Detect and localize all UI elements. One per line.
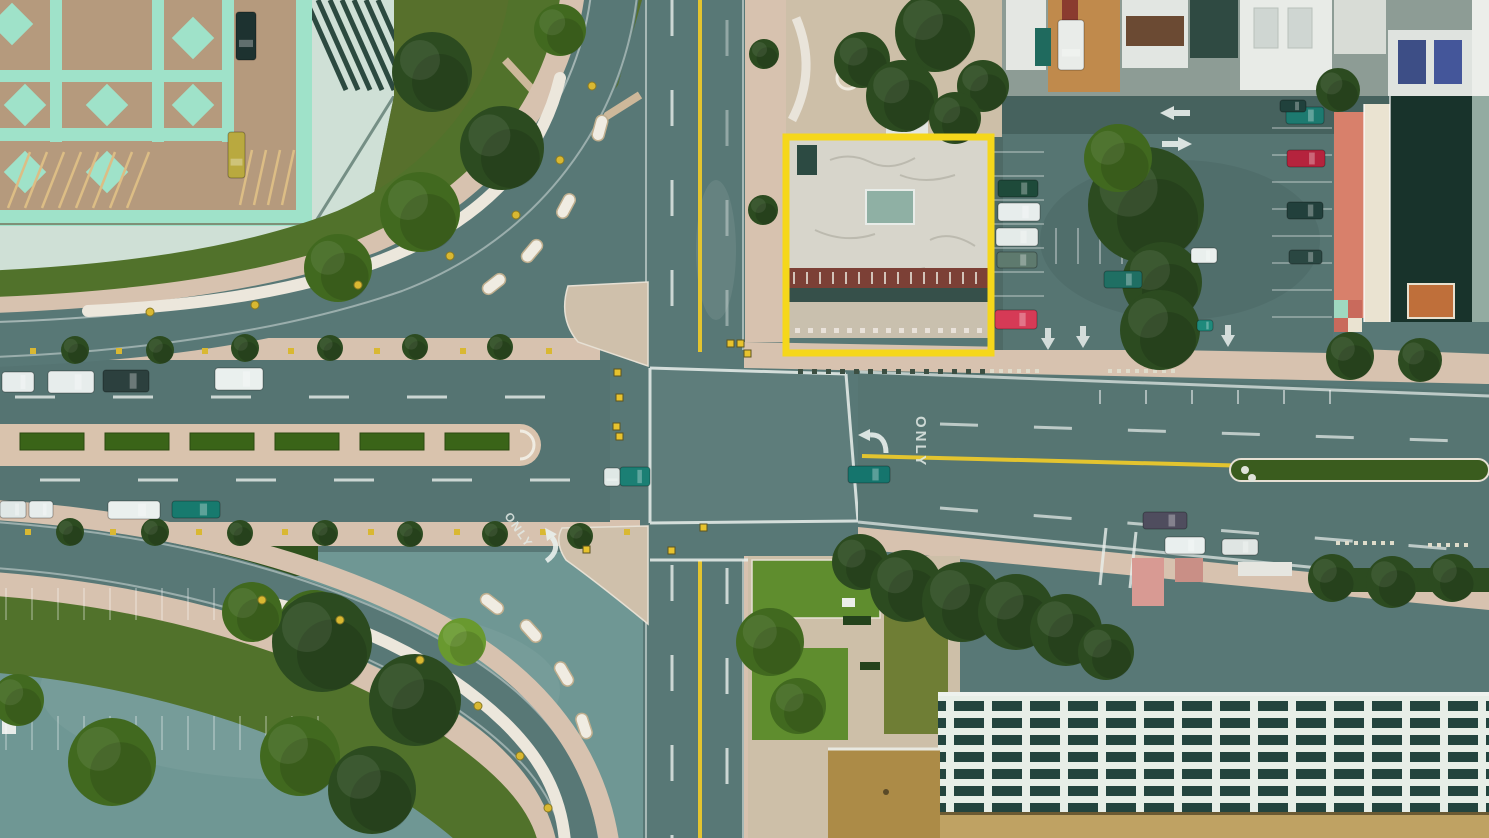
- tree: [770, 678, 826, 734]
- paver-dot: [1135, 369, 1139, 373]
- car-windshield: [1188, 540, 1194, 552]
- car-body: [215, 368, 263, 390]
- hedge-planter: [190, 433, 254, 450]
- paver-dot: [854, 369, 859, 374]
- tree-highlight: [320, 338, 333, 351]
- parking-meter: [202, 348, 208, 354]
- car-body: [1287, 150, 1325, 167]
- parking-meter: [30, 348, 36, 354]
- tree-highlight: [743, 615, 777, 649]
- car-body: [604, 468, 620, 486]
- tree-highlight: [962, 65, 988, 91]
- canopy-dot: [251, 301, 259, 309]
- paver-dot: [1144, 369, 1148, 373]
- center-yellow-line: [698, 560, 702, 838]
- parking-meter: [282, 529, 288, 535]
- tree: [146, 336, 174, 364]
- car-windshield: [637, 470, 642, 483]
- hedge: [843, 616, 871, 625]
- paver-dot: [910, 369, 915, 374]
- car: [997, 252, 1037, 268]
- roof-equipment: [797, 145, 817, 175]
- paver-dot: [938, 328, 943, 333]
- paver-dot: [1336, 541, 1340, 545]
- car: [996, 228, 1038, 246]
- parking-meter: [25, 529, 31, 535]
- paver-dot: [1126, 369, 1130, 373]
- paver-dot: [821, 328, 826, 333]
- car: [998, 180, 1038, 197]
- paver-dot: [1354, 541, 1358, 545]
- coral-stripe: [1334, 112, 1364, 318]
- car-windshield: [239, 40, 253, 47]
- tree-highlight: [400, 524, 413, 537]
- tree-highlight: [228, 588, 258, 618]
- car: [103, 370, 149, 392]
- tree: [141, 518, 169, 546]
- paver-dot: [798, 369, 803, 374]
- car: [1143, 512, 1187, 529]
- tree-highlight: [485, 524, 498, 537]
- car: [848, 466, 890, 483]
- paver-dot: [1390, 541, 1394, 545]
- tree-highlight: [311, 241, 345, 275]
- car: [108, 501, 160, 519]
- tree-highlight: [539, 9, 565, 35]
- car-body: [2, 372, 34, 392]
- traffic-signal: [616, 433, 623, 440]
- tree-highlight: [59, 521, 73, 535]
- car-body: [848, 466, 890, 483]
- tree: [272, 592, 372, 692]
- tree: [317, 335, 343, 361]
- solar-panel: [1398, 40, 1426, 84]
- paver-dot: [1446, 543, 1450, 547]
- car-body: [1289, 250, 1322, 264]
- car-windshield: [138, 504, 146, 517]
- curb-ramp: [1175, 558, 1203, 582]
- tree: [482, 521, 508, 547]
- car-windshield: [1021, 183, 1027, 195]
- tree-highlight: [1128, 298, 1168, 338]
- paver-dot: [826, 369, 831, 374]
- paver-dot: [896, 369, 901, 374]
- car-windshield: [1308, 205, 1313, 217]
- car-windshield: [1022, 206, 1028, 219]
- tan-roof-band: [938, 815, 1489, 838]
- tree-highlight: [388, 180, 428, 220]
- car-windshield: [1206, 250, 1210, 261]
- car-body: [103, 370, 149, 392]
- car-windshield: [130, 373, 137, 388]
- car: [215, 368, 263, 390]
- car-body: [0, 501, 26, 518]
- car: [29, 501, 53, 518]
- tree-highlight: [1313, 559, 1337, 583]
- paver-dot: [882, 369, 887, 374]
- hedge: [860, 662, 880, 670]
- tree: [328, 746, 416, 834]
- car-windshield: [606, 478, 617, 481]
- tree-highlight: [1402, 342, 1424, 364]
- canopy-dot: [446, 252, 454, 260]
- paver-dot: [808, 328, 813, 333]
- tree: [1366, 556, 1418, 608]
- canopy-dot: [416, 656, 424, 664]
- paver-dot: [860, 328, 865, 333]
- car-windshield: [1062, 49, 1080, 57]
- car-body: [1197, 320, 1213, 331]
- paver-dot: [938, 369, 943, 374]
- tree-highlight: [337, 755, 381, 799]
- car: [1058, 20, 1084, 70]
- traffic-signal: [616, 394, 623, 401]
- canopy-dot: [146, 308, 154, 316]
- car-windshield: [231, 159, 243, 166]
- scene-canvas: ONLY ONLY: [0, 0, 1489, 838]
- paver-dot: [1381, 541, 1385, 545]
- paver-dot: [1437, 543, 1441, 547]
- tree-highlight: [443, 623, 467, 647]
- tree: [748, 195, 778, 225]
- parking-meter: [546, 348, 552, 354]
- paver-dot: [868, 369, 873, 374]
- canopy-dot: [354, 281, 362, 289]
- traffic-signal: [737, 340, 744, 347]
- road-marking-only-east: ONLY: [912, 416, 929, 468]
- canopy-dot: [474, 702, 482, 710]
- parking-meter: [460, 348, 466, 354]
- tree-highlight: [1371, 561, 1397, 587]
- tree-highlight: [77, 727, 121, 771]
- tree-highlight: [234, 337, 248, 351]
- car-windshield: [75, 374, 82, 389]
- car-body: [1143, 512, 1187, 529]
- checker-trim: [1334, 300, 1362, 332]
- traffic-signal: [613, 423, 620, 430]
- tree: [1078, 624, 1134, 680]
- tree: [392, 32, 472, 112]
- car-windshield: [243, 371, 250, 386]
- pink-walkway: [1132, 558, 1164, 606]
- car: [48, 371, 94, 393]
- canopy-dot: [544, 804, 552, 812]
- hedge-planter: [20, 433, 84, 450]
- car-body: [995, 310, 1037, 329]
- paver-dot: [1464, 543, 1468, 547]
- paver-dot: [840, 369, 845, 374]
- car-body: [1287, 202, 1323, 219]
- parking-meter: [288, 348, 294, 354]
- tree-highlight: [405, 337, 418, 350]
- car-windshield: [1295, 102, 1299, 110]
- tree: [312, 520, 338, 546]
- traffic-signal: [744, 350, 751, 357]
- car-windshield: [1020, 231, 1026, 244]
- car: [1104, 271, 1142, 288]
- traffic-signal: [614, 369, 621, 376]
- tree: [68, 718, 156, 806]
- canopy-dot: [258, 596, 266, 604]
- brick-chimney: [1408, 284, 1454, 318]
- tree: [567, 523, 593, 549]
- car-body: [998, 180, 1038, 197]
- tree: [56, 518, 84, 546]
- car: [620, 467, 650, 486]
- tree-highlight: [930, 570, 970, 610]
- parking-meter: [116, 348, 122, 354]
- skylight-grid-roof: [900, 692, 1489, 838]
- paver-dot: [964, 328, 969, 333]
- car-windshield: [43, 504, 47, 516]
- car-body: [997, 252, 1037, 268]
- parking-meter: [110, 529, 116, 535]
- ochre-roof: [828, 749, 940, 838]
- car: [1280, 100, 1306, 112]
- car-windshield: [200, 504, 207, 516]
- car-body: [108, 501, 160, 519]
- hedge-planter: [105, 433, 169, 450]
- tree-highlight: [840, 38, 868, 66]
- coral-building: [1334, 96, 1489, 332]
- paver-dot: [812, 369, 817, 374]
- car-windshield: [1206, 322, 1208, 330]
- canopy-dot: [588, 82, 596, 90]
- tree-highlight: [64, 339, 78, 353]
- tree-highlight: [1037, 601, 1073, 637]
- paver-dot: [1363, 541, 1367, 545]
- canopy-dot: [512, 211, 520, 219]
- tree: [397, 521, 423, 547]
- tree-highlight: [752, 42, 767, 57]
- car-windshield: [1308, 110, 1314, 122]
- tree: [736, 608, 804, 676]
- tree-highlight: [838, 540, 866, 568]
- paver-dot: [1117, 369, 1121, 373]
- tree-highlight: [282, 602, 332, 652]
- paver-dot: [1428, 543, 1432, 547]
- traffic-signal: [583, 546, 590, 553]
- tree: [749, 39, 779, 69]
- paver-dot: [1171, 369, 1175, 373]
- car: [1165, 537, 1205, 554]
- canopy-dot: [516, 752, 524, 760]
- paver-dot: [925, 328, 930, 333]
- paver-dot: [886, 328, 891, 333]
- tree: [222, 582, 282, 642]
- center-yellow-line: [698, 0, 702, 352]
- tree-highlight: [468, 114, 510, 156]
- paver-dot: [924, 369, 929, 374]
- parking-meter: [368, 529, 374, 535]
- tree-highlight: [149, 339, 163, 353]
- tree: [304, 234, 372, 302]
- tree: [1428, 554, 1476, 602]
- tree-highlight: [776, 684, 804, 712]
- tree-highlight: [1091, 131, 1125, 165]
- parking-meter: [540, 529, 546, 535]
- tree: [1308, 554, 1356, 602]
- car-body: [998, 203, 1040, 221]
- car-body: [1280, 100, 1306, 112]
- car: [1197, 320, 1213, 331]
- mower: [842, 598, 855, 607]
- paver-dot: [999, 369, 1003, 373]
- tree-highlight: [268, 724, 308, 764]
- paver-dot: [1035, 369, 1039, 373]
- car-windshield: [872, 469, 878, 481]
- cream-stripe: [1364, 104, 1390, 322]
- tree: [866, 60, 938, 132]
- tree: [1120, 290, 1200, 370]
- parking-meter: [454, 529, 460, 535]
- paver-dot: [951, 328, 956, 333]
- paver-dot: [980, 369, 985, 374]
- paver-dot: [1455, 543, 1459, 547]
- tree: [402, 334, 428, 360]
- tree: [380, 172, 460, 252]
- car-windshield: [1126, 274, 1132, 286]
- tree-highlight: [570, 526, 583, 539]
- car-body: [1104, 271, 1142, 288]
- car-body: [228, 132, 245, 178]
- canopy-dot: [556, 156, 564, 164]
- car: [1222, 539, 1258, 555]
- tree-highlight: [378, 663, 424, 709]
- car-body: [1058, 20, 1084, 70]
- car-body: [29, 501, 53, 518]
- roof-courtyard: [866, 190, 914, 224]
- car: [998, 203, 1040, 221]
- paver-dot: [1345, 541, 1349, 545]
- tree: [1398, 338, 1442, 382]
- tree-highlight: [986, 582, 1024, 620]
- aerial-intersection-scene: ONLY ONLY: [0, 0, 1489, 838]
- tree-highlight: [490, 337, 503, 350]
- car-body: [620, 467, 650, 486]
- tree-highlight: [315, 523, 328, 536]
- car: [604, 468, 620, 486]
- car-body: [1165, 537, 1205, 554]
- paver-dot: [1008, 369, 1012, 373]
- tree-highlight: [1084, 630, 1112, 658]
- tree: [260, 716, 340, 796]
- paver-dot: [1017, 369, 1021, 373]
- car: [1289, 250, 1322, 264]
- car-windshield: [1243, 541, 1248, 552]
- paver-dot: [912, 328, 917, 333]
- traffic-signal: [727, 340, 734, 347]
- tree: [487, 334, 513, 360]
- hedge-planter: [360, 433, 424, 450]
- traffic-signal: [668, 547, 675, 554]
- car: [172, 501, 220, 518]
- tree: [1084, 124, 1152, 192]
- tree: [460, 106, 544, 190]
- paver-dot: [899, 328, 904, 333]
- tree-highlight: [1433, 559, 1457, 583]
- tree: [227, 520, 253, 546]
- paver-dot: [795, 328, 800, 333]
- east-grass-median: [1230, 459, 1489, 482]
- paver-dot: [990, 369, 994, 373]
- paver-dot: [834, 328, 839, 333]
- paver-dot: [1372, 541, 1376, 545]
- traffic-signal: [700, 524, 707, 531]
- car-windshield: [1020, 254, 1026, 265]
- intersection-area: [650, 368, 858, 523]
- hedge-planter: [445, 433, 509, 450]
- paver-dot: [873, 328, 878, 333]
- car-windshield: [1019, 313, 1025, 326]
- paver-dot: [977, 328, 982, 333]
- parking-meter: [374, 348, 380, 354]
- car: [236, 12, 256, 60]
- car-body: [1222, 539, 1258, 555]
- car-windshield: [15, 504, 19, 516]
- car: [0, 501, 26, 518]
- tree: [1316, 68, 1360, 112]
- car-windshield: [1309, 153, 1315, 165]
- car-windshield: [1169, 515, 1176, 527]
- car: [228, 132, 245, 178]
- car-body: [996, 228, 1038, 246]
- car-windshield: [1308, 252, 1313, 262]
- tree-highlight: [903, 0, 943, 40]
- tree-highlight: [400, 40, 440, 80]
- parking-meter: [624, 529, 630, 535]
- car-windshield: [21, 375, 26, 389]
- tree: [369, 654, 461, 746]
- car: [1287, 202, 1323, 219]
- car-body: [172, 501, 220, 518]
- car-body: [1191, 248, 1217, 263]
- tree-highlight: [1331, 337, 1355, 361]
- tree-highlight: [873, 67, 909, 103]
- solar-panel: [1434, 40, 1462, 84]
- car: [1191, 248, 1217, 263]
- tree-highlight: [230, 523, 243, 536]
- car-body: [236, 12, 256, 60]
- tree-highlight: [751, 198, 766, 213]
- canopy-dot: [336, 616, 344, 624]
- tree-highlight: [877, 557, 913, 593]
- car: [995, 310, 1037, 329]
- paver-dot: [1026, 369, 1030, 373]
- paver-dot: [966, 369, 971, 374]
- tree: [1326, 332, 1374, 380]
- tree-highlight: [144, 521, 158, 535]
- paver-dot: [1108, 369, 1112, 373]
- car-body: [48, 371, 94, 393]
- white-walkway: [1238, 562, 1292, 576]
- car: [2, 372, 34, 392]
- shadow-band: [789, 288, 990, 302]
- rooftop-parking-deck: [0, 0, 312, 226]
- hedge-planter: [275, 433, 339, 450]
- paver-dot: [952, 369, 957, 374]
- tree-highlight: [1320, 72, 1342, 94]
- tree: [61, 336, 89, 364]
- tree: [534, 4, 586, 56]
- tree-highlight: [934, 97, 960, 123]
- highlighted-building: [789, 137, 1003, 350]
- tree: [231, 334, 259, 362]
- parking-meter: [196, 529, 202, 535]
- paver-dot: [847, 328, 852, 333]
- car: [1287, 150, 1325, 167]
- tree: [438, 618, 486, 666]
